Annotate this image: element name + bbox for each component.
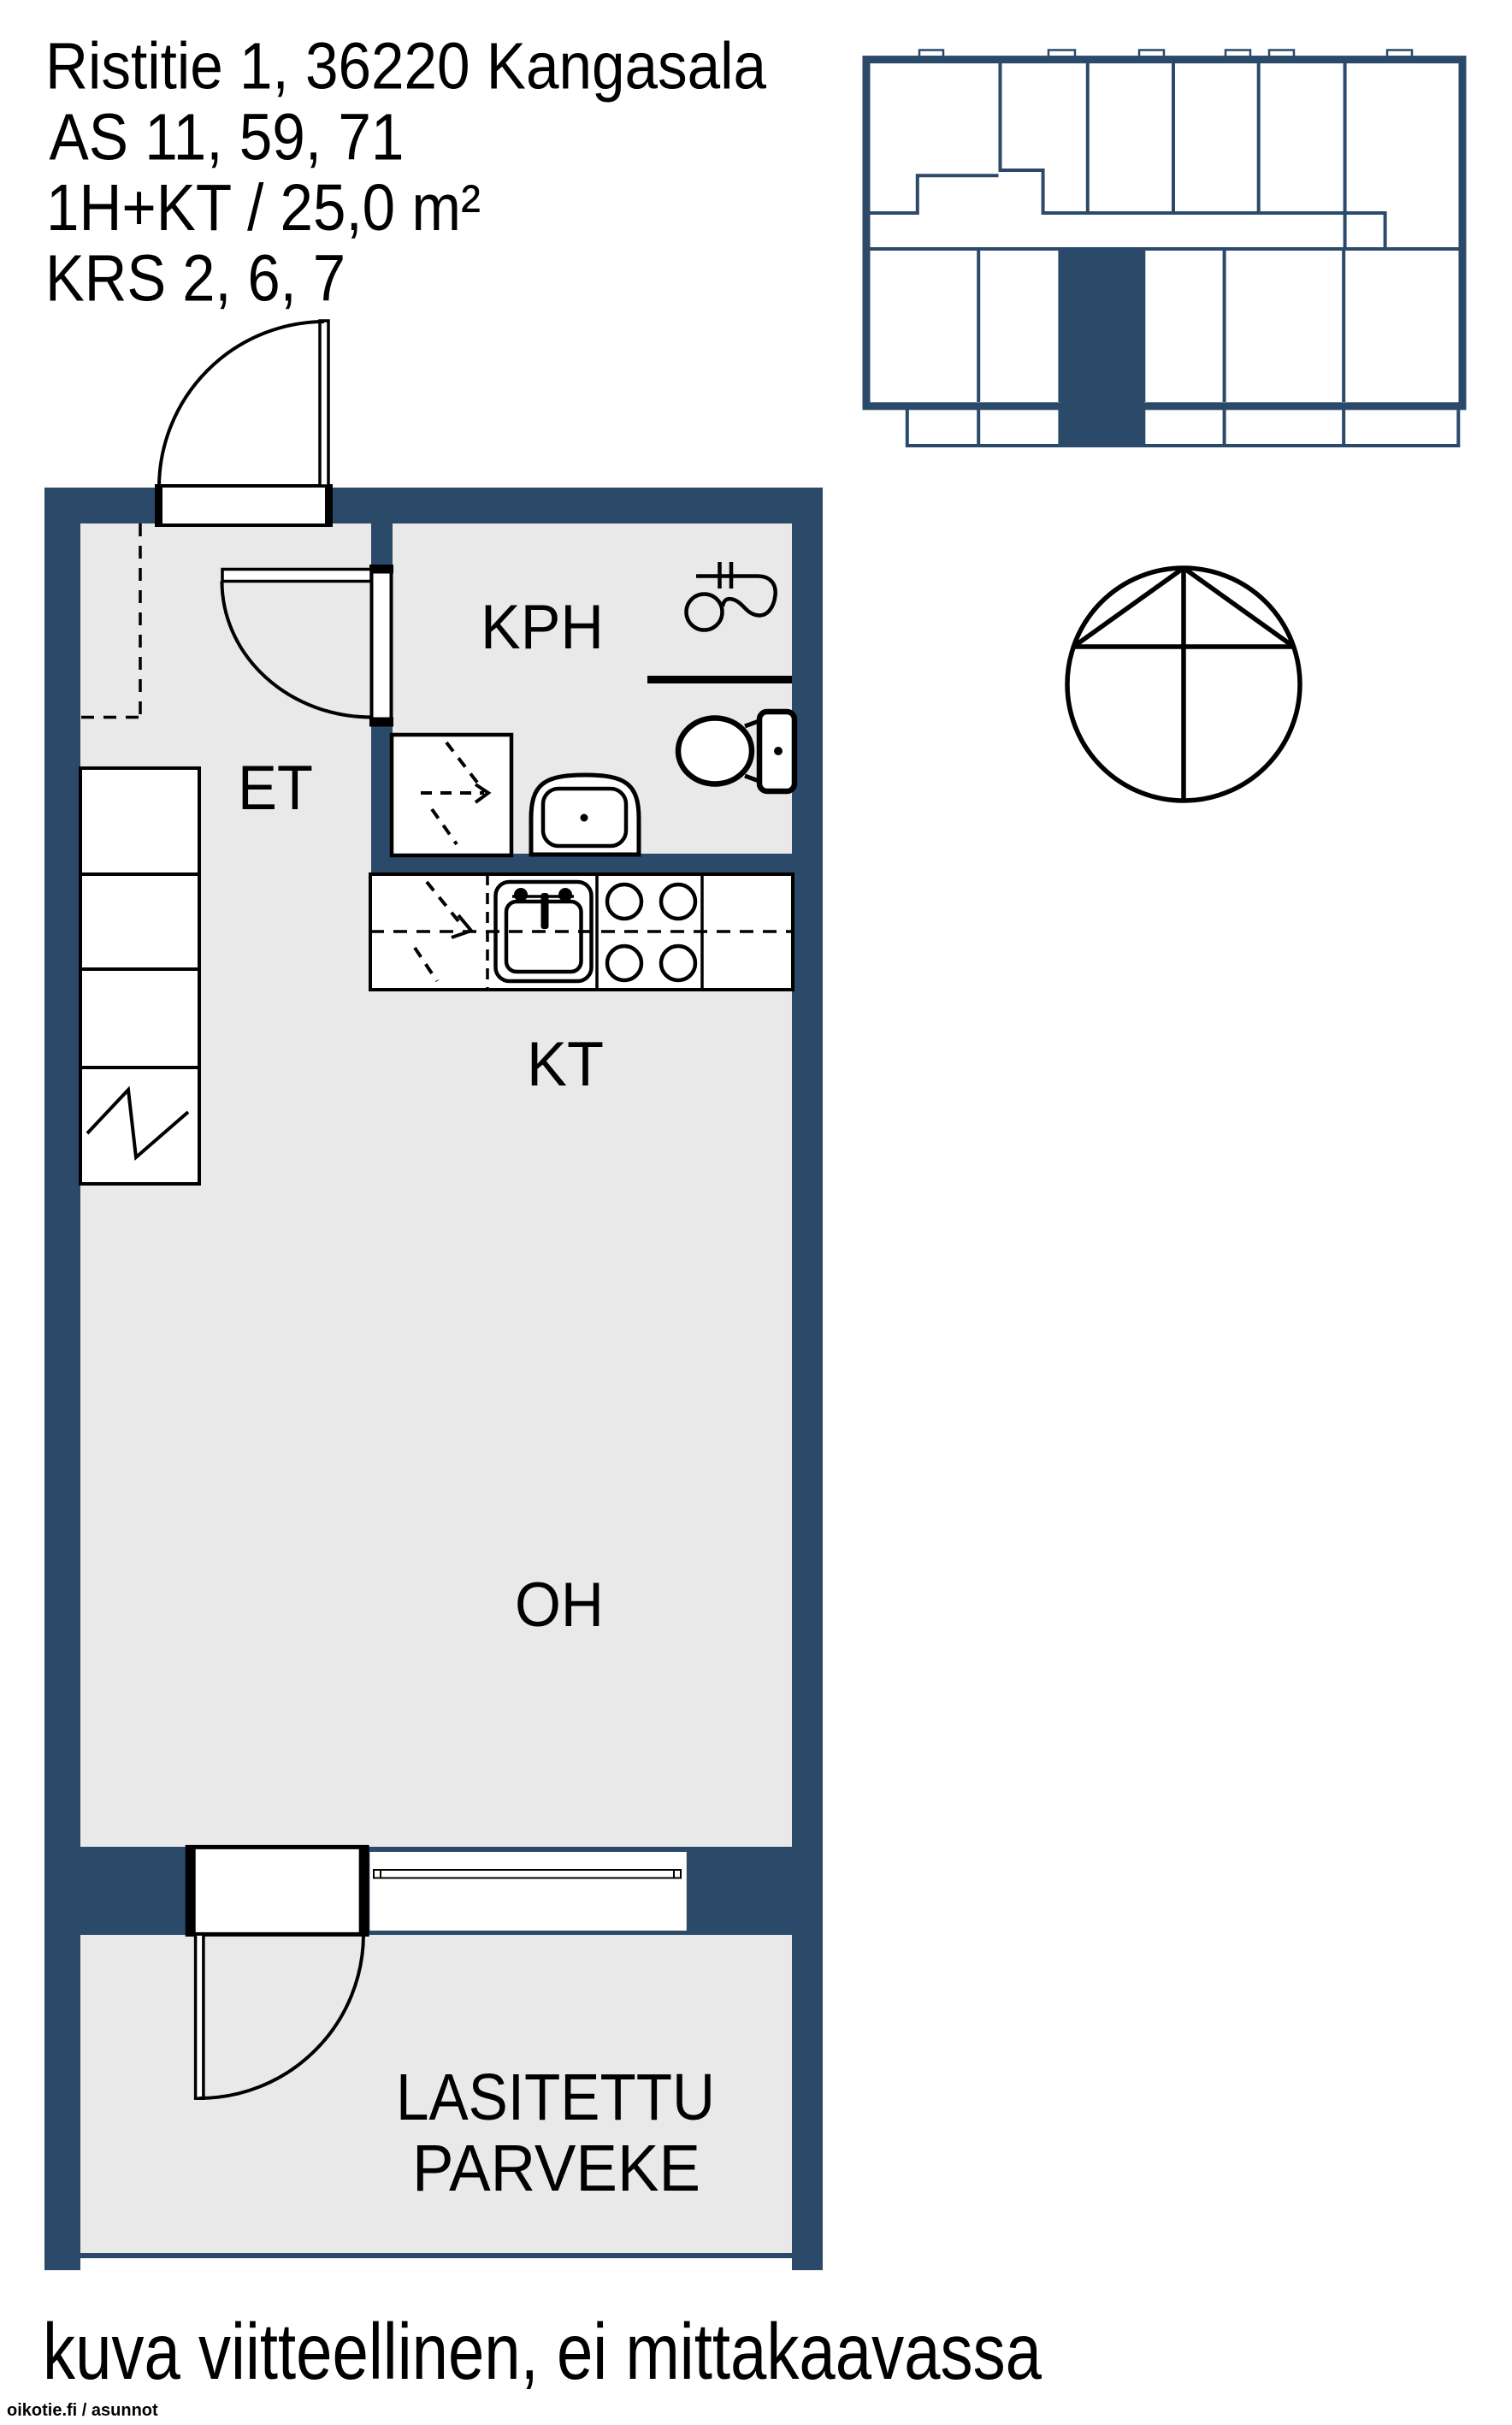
svg-text:KT: KT [527,1030,604,1099]
svg-text:LASITETTU: LASITETTU [396,2061,715,2134]
svg-text:Ristitie 1, 36220 Kangasala: Ristitie 1, 36220 Kangasala [45,30,766,104]
svg-text:AS 11, 59, 71: AS 11, 59, 71 [50,101,405,174]
svg-text:KPH: KPH [481,593,604,662]
svg-text:kuva viitteellinen, ei mittaka: kuva viitteellinen, ei mittakaavassa [43,2307,1042,2396]
svg-text:ET: ET [238,754,313,823]
svg-text:1H+KT / 25,0 m²: 1H+KT / 25,0 m² [46,171,481,245]
svg-text:OH: OH [515,1570,604,1640]
svg-text:KRS 2, 6, 7: KRS 2, 6, 7 [45,242,346,316]
svg-text:PARVEKE: PARVEKE [412,2132,700,2205]
svg-text:oikotie.fi / asunnot: oikotie.fi / asunnot [7,2401,158,2420]
